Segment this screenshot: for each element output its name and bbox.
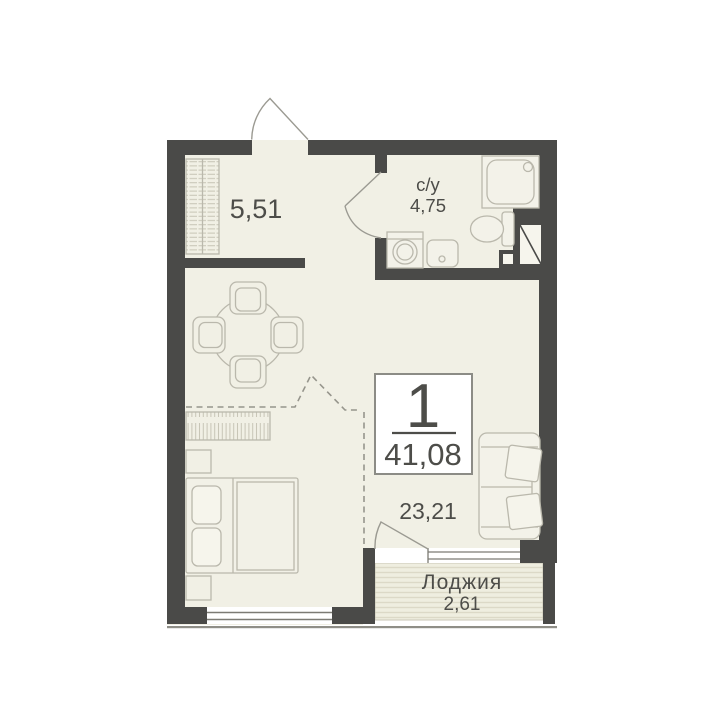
wall-top-right — [308, 140, 557, 155]
wardrobe-icon — [186, 159, 219, 254]
facade-line — [167, 626, 557, 628]
floor-plan-canvas: 1 41,08 5,51 с/у 4,75 23,21 Лоджия 2,61 — [0, 0, 726, 726]
chair-bottom-icon — [230, 356, 266, 388]
loggia-name-label: Лоджия — [422, 571, 502, 594]
wall-right — [539, 140, 557, 563]
hallway-area-label: 5,51 — [230, 194, 283, 224]
apartment-floor-plan: 1 41,08 5,51 с/у 4,75 23,21 Лоджия 2,61 — [0, 0, 726, 726]
living-window — [207, 607, 332, 624]
chair-top-icon — [230, 282, 266, 314]
bathroom-name-label: с/у — [416, 174, 440, 195]
wall-loggia-left — [363, 548, 375, 624]
nightstand-top-icon — [186, 450, 211, 473]
wall-loggia-right — [543, 563, 555, 624]
bed-icon — [186, 478, 298, 573]
small-shaft — [503, 254, 513, 264]
wall-bathroom-left-lower — [375, 238, 387, 280]
wall-bottom-left — [167, 607, 207, 624]
chair-left-icon — [193, 317, 225, 353]
nightstand-bottom-icon — [186, 576, 211, 600]
chair-right-icon — [271, 317, 303, 353]
shower-icon — [482, 156, 539, 208]
loggia-area-label: 2,61 — [444, 594, 481, 615]
bathroom-area-label: 4,75 — [410, 195, 446, 216]
wall-bathroom-bottom — [375, 268, 539, 280]
balcony-block — [375, 548, 520, 563]
total-area-label: 41,08 — [384, 437, 462, 472]
wall-left — [167, 140, 185, 624]
sofa-icon — [479, 433, 543, 539]
wall-hallway-bottom — [167, 258, 305, 268]
washing-machine-icon — [387, 232, 423, 268]
dresser-icon — [186, 412, 270, 440]
rooms-count-label: 1 — [406, 372, 440, 441]
area-badge: 1 41,08 — [375, 372, 472, 474]
sink-icon — [427, 240, 458, 267]
wall-bathroom-left-stub — [375, 155, 387, 173]
living-area-label: 23,21 — [399, 498, 457, 524]
wall-loggia-corner — [520, 540, 557, 563]
entrance-door-icon — [252, 99, 308, 140]
